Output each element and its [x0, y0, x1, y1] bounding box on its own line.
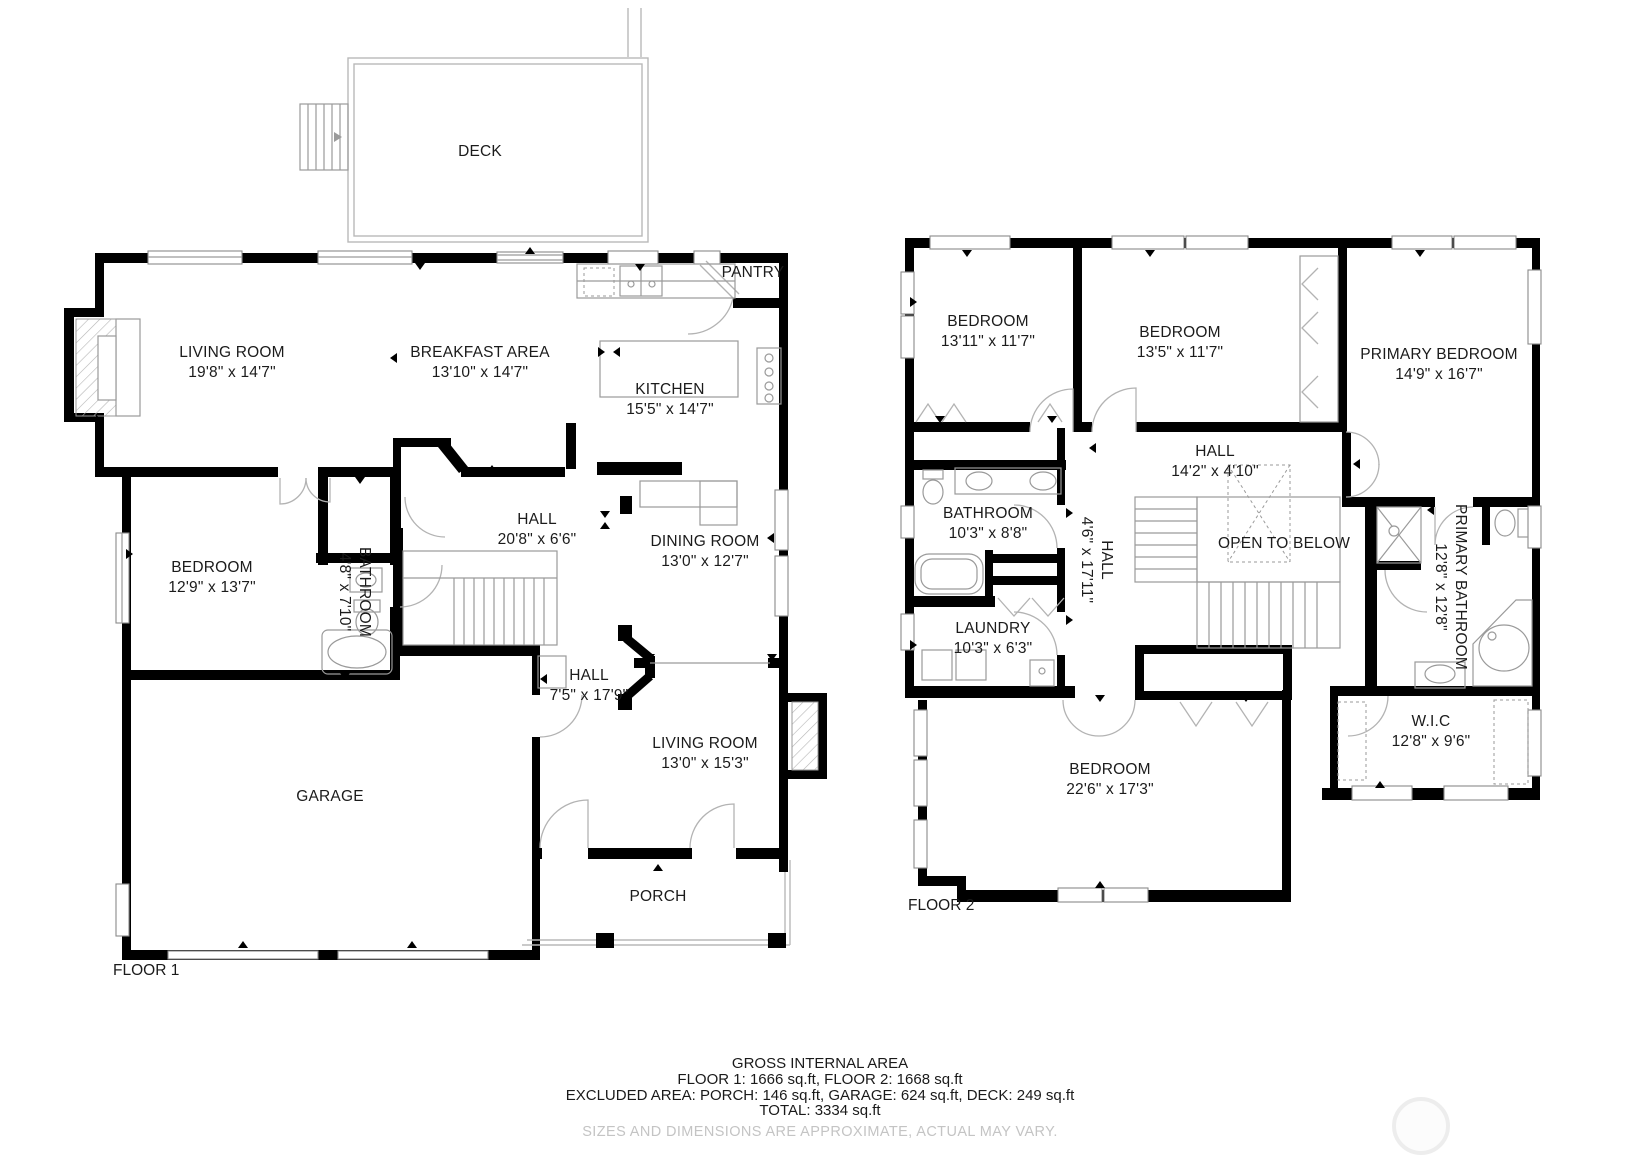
deck-stairs: [300, 104, 348, 170]
room-name: HALL: [1195, 443, 1235, 460]
room-name: W.I.C: [1412, 713, 1451, 730]
room-dims: 12'8" x 12'8": [1432, 543, 1449, 631]
room-label-pantry: PANTRY: [722, 263, 785, 283]
room-label-bedroom-f2-1: BEDROOM 13'11" x 11'7": [941, 312, 1035, 352]
room-dims: 15'5" x 14'7": [626, 401, 714, 418]
room-name: BEDROOM: [1139, 324, 1221, 341]
laundry-sink: [1030, 660, 1054, 686]
porch-post: [768, 933, 786, 948]
room-label-hall-f2-vertical: HALL 4'6" x 17'11": [1076, 517, 1116, 603]
room-label-laundry: LAUNDRY 10'3" x 6'3": [954, 619, 1033, 659]
room-dims: 14'2" x 4'10": [1171, 463, 1259, 480]
room-label-porch: PORCH: [630, 887, 687, 907]
room-label-wic: W.I.C 12'8" x 9'6": [1392, 712, 1471, 752]
room-label-living-room-2: LIVING ROOM 13'0" x 15'3": [652, 734, 758, 774]
room-name: HALL: [569, 667, 609, 684]
room-dims: 20'8" x 6'6": [498, 531, 577, 548]
room-dims: 14'9" x 16'7": [1395, 366, 1483, 383]
room-label-bedroom-f1: BEDROOM 12'9" x 13'7": [168, 558, 256, 598]
porch-post: [779, 859, 788, 872]
fireplace-left: [76, 319, 140, 416]
room-name: PRIMARY BATHROOM: [1452, 504, 1469, 670]
room-name: BEDROOM: [171, 559, 253, 576]
room-name: DECK: [458, 143, 502, 160]
room-label-hall-f2: HALL 14'2" x 4'10": [1171, 442, 1259, 482]
floor1-title: FLOOR 1: [113, 962, 179, 980]
room-label-bathroom-f2: BATHROOM 10'3" x 8'8": [943, 504, 1033, 544]
floorplan-page: DECK LIVING ROOM 19'8" x 14'7" BREAKFAST…: [0, 0, 1647, 1164]
room-name: LAUNDRY: [955, 620, 1030, 637]
room-name: BEDROOM: [947, 313, 1029, 330]
summary-floors: FLOOR 1: 1666 sq.ft, FLOOR 2: 1668 sq.ft: [566, 1072, 1075, 1088]
room-dims: 12'8" x 9'6": [1392, 733, 1471, 750]
room-label-primary-bedroom: PRIMARY BEDROOM 14'9" x 16'7": [1360, 345, 1517, 385]
room-name: PRIMARY BEDROOM: [1360, 346, 1517, 363]
room-label-hall-2: HALL 7'5" x 17'9": [550, 666, 629, 706]
room-name: BATHROOM: [356, 547, 373, 637]
room-name: OPEN TO BELOW: [1218, 535, 1350, 552]
room-label-kitchen: KITCHEN 15'5" x 14'7": [626, 380, 714, 420]
room-name: DINING ROOM: [651, 533, 760, 550]
room-label-bathroom-f1: BATHROOM 4'8" x 7'10": [334, 547, 374, 637]
room-label-bedroom-f2-2: BEDROOM 13'5" x 11'7": [1137, 323, 1223, 363]
floor2-title: FLOOR 2: [908, 897, 974, 915]
room-dims: 7'5" x 17'9": [550, 687, 629, 704]
room-name: HALL: [517, 511, 557, 528]
room-label-primary-bathroom: PRIMARY BATHROOM 12'8" x 12'8": [1430, 504, 1470, 670]
room-name: HALL: [1098, 540, 1115, 580]
summary-excluded: EXCLUDED AREA: PORCH: 146 sq.ft, GARAGE:…: [566, 1088, 1075, 1104]
room-dims: 13'5" x 11'7": [1137, 344, 1223, 361]
room-name: BATHROOM: [943, 505, 1033, 522]
room-name: BEDROOM: [1069, 761, 1151, 778]
toilet: [1495, 510, 1515, 536]
disclaimer-text: SIZES AND DIMENSIONS ARE APPROXIMATE, AC…: [582, 1124, 1058, 1140]
room-dims: 4'6" x 17'11": [1078, 517, 1095, 603]
room-dims: 12'9" x 13'7": [168, 579, 256, 596]
room-name: BREAKFAST AREA: [410, 344, 550, 361]
room-label-hall-1: HALL 20'8" x 6'6": [498, 510, 577, 550]
room-name: PORCH: [630, 888, 687, 905]
corner-tub: [1473, 600, 1532, 686]
fireplace-right: [792, 702, 818, 770]
room-name: KITCHEN: [635, 381, 704, 398]
room-label-garage: GARAGE: [296, 787, 364, 807]
room-dims: 13'0" x 15'3": [661, 755, 749, 772]
floor2-stairwell: [1135, 465, 1340, 648]
room-dims: 22'6" x 17'3": [1066, 781, 1154, 798]
room-dims: 13'11" x 11'7": [941, 333, 1035, 350]
area-summary: GROSS INTERNAL AREA FLOOR 1: 1666 sq.ft,…: [566, 1056, 1075, 1119]
room-name: GARAGE: [296, 788, 364, 805]
room-label-bedroom-f2-3: BEDROOM 22'6" x 17'3": [1066, 760, 1154, 800]
room-dims: 13'0" x 12'7": [661, 553, 749, 570]
room-label-dining-room: DINING ROOM 13'0" x 12'7": [651, 532, 760, 572]
room-name: LIVING ROOM: [179, 344, 285, 361]
watermark-circle: [1394, 1099, 1448, 1153]
room-dims: 10'3" x 6'3": [954, 640, 1033, 657]
summary-total: TOTAL: 3334 sq.ft: [566, 1103, 1075, 1119]
toilet: [923, 470, 943, 479]
floor1-stairs: [403, 551, 566, 688]
room-label-living-room-1: LIVING ROOM 19'8" x 14'7": [179, 343, 285, 383]
porch-post: [596, 933, 614, 948]
room-dims: 4'8" x 7'10": [336, 553, 353, 632]
summary-heading: GROSS INTERNAL AREA: [566, 1056, 1075, 1072]
room-dims: 19'8" x 14'7": [188, 364, 276, 381]
room-label-open-to-below: OPEN TO BELOW: [1218, 534, 1350, 554]
washer: [922, 650, 952, 680]
room-label-breakfast-area: BREAKFAST AREA 13'10" x 14'7": [410, 343, 550, 383]
deck-outline: [348, 8, 648, 242]
room-label-deck: DECK: [458, 142, 502, 162]
bathtub: [915, 554, 983, 594]
room-dims: 13'10" x 14'7": [432, 364, 528, 381]
room-name: PANTRY: [722, 264, 785, 281]
room-name: LIVING ROOM: [652, 735, 758, 752]
room-dims: 10'3" x 8'8": [949, 525, 1028, 542]
